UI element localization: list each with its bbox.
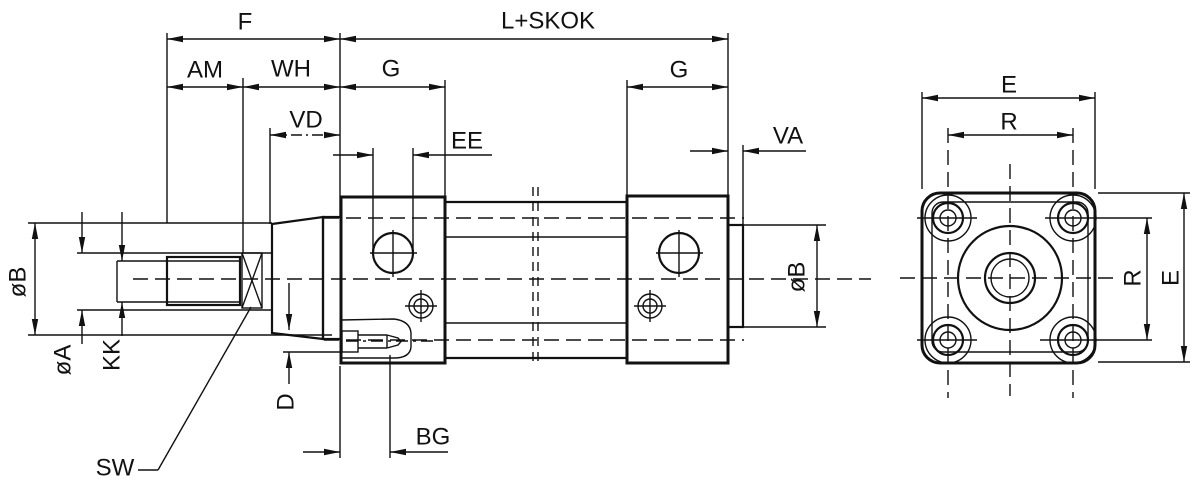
drawing-canvas: F L+SKOK AM WH G G VD EE VA <box>0 0 1200 494</box>
dim-label-SW: SW <box>96 455 135 482</box>
rear-boss <box>728 225 743 327</box>
dim-label-diaB-left: øB <box>5 267 32 298</box>
dim-label-R-side: R <box>1120 269 1147 286</box>
dim-label-D: D <box>273 393 300 410</box>
dim-label-E-side: E <box>1158 270 1185 286</box>
side-view-cylinder: F L+SKOK AM WH G G VD EE VA <box>5 8 872 482</box>
dim-label-G-right: G <box>670 57 689 84</box>
dim-label-EE: EE <box>451 128 483 155</box>
dim-label-WH: WH <box>271 56 311 83</box>
dim-label-VA: VA <box>773 123 803 150</box>
rod-thread-block <box>167 257 240 305</box>
dim-label-G-left: G <box>382 56 401 83</box>
dim-label-KK: KK <box>99 339 126 371</box>
front-collar <box>323 217 341 339</box>
end-view-flange: E R R E <box>900 72 1190 399</box>
front-end-cap <box>341 197 445 363</box>
dim-label-VD: VD <box>289 107 322 134</box>
flange-bolt-holes <box>917 128 1152 398</box>
rod-mount-cone <box>272 217 323 339</box>
dim-label-F: F <box>238 9 253 36</box>
dim-label-L-SKOK: L+SKOK <box>501 8 595 35</box>
dim-label-diaB-right: øB <box>784 262 811 293</box>
dim-label-R-top: R <box>1000 109 1017 136</box>
piston-rod-assembly <box>77 217 341 339</box>
dim-label-diaA: øA <box>50 345 77 376</box>
sw-leader-line <box>158 307 251 470</box>
cushion-needle-screw <box>342 331 433 352</box>
dimensions-side-view: F L+SKOK AM WH G G VD EE VA <box>5 8 827 482</box>
cylinder-dimension-drawing: F L+SKOK AM WH G G VD EE VA <box>0 0 1200 494</box>
dim-label-AM: AM <box>187 57 223 84</box>
dim-label-E-top: E <box>1001 72 1017 99</box>
dim-label-BG: BG <box>416 424 451 451</box>
